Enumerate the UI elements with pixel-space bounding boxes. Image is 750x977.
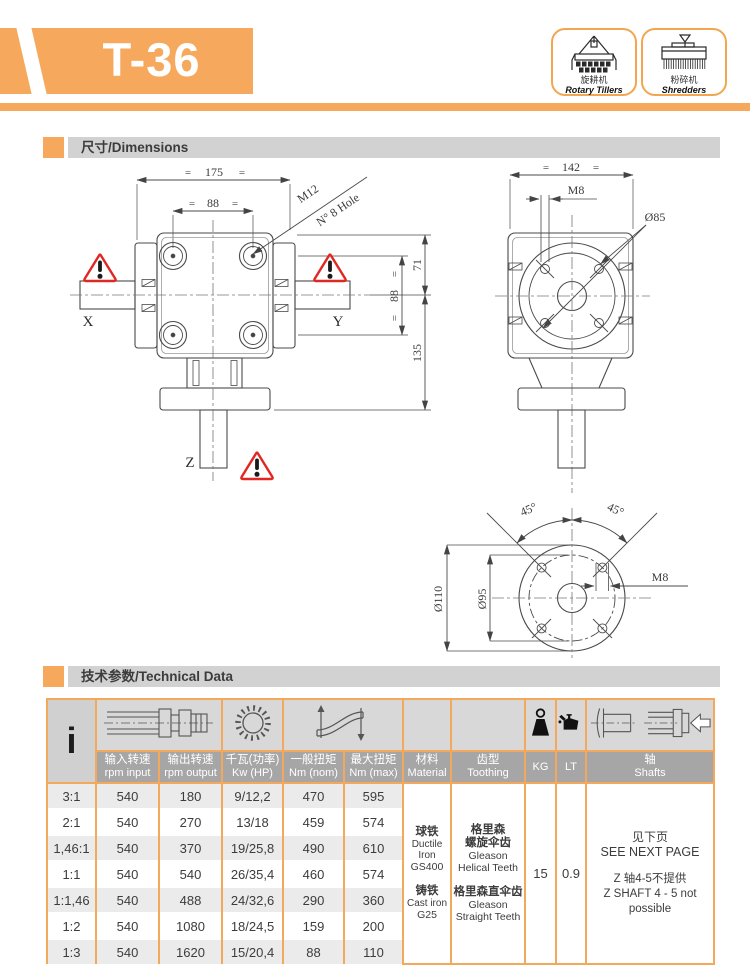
col-header-rpm-output: 输出转速rpm output	[159, 751, 222, 783]
rpm-input-cell: 540	[96, 783, 159, 809]
col-header-nm-nom: 一般扭矩Nm (nom)	[283, 751, 344, 783]
kw-hp-cell: 9/12,2	[222, 783, 283, 809]
col-header-kw-hp: 千瓦(功率)Kw (HP)	[222, 751, 283, 783]
datasheet-page: T-36 旋耕机 Rotary Tillers	[0, 0, 750, 977]
kw-hp-cell: 26/35,4	[222, 861, 283, 887]
dim-vertical-71: 71	[410, 259, 424, 271]
material-cell: 球铁 Ductile Iron GS400 铸铁 Cast iron G25	[403, 783, 451, 964]
dim-eq-mark: =	[185, 167, 191, 179]
technical-data-table: i	[46, 698, 715, 965]
section-title: 尺寸/Dimensions	[68, 137, 720, 158]
toothing-icon-cell	[451, 699, 525, 751]
col-header-toothing: 齿型Toothing	[451, 751, 525, 783]
rpm-output-cell: 488	[159, 887, 222, 913]
rpm-input-cell: 540	[96, 887, 159, 913]
machine-label-en: Shredders	[643, 85, 725, 95]
power-icon-cell	[222, 699, 283, 751]
kw-hp-cell: 19/25,8	[222, 835, 283, 861]
nm-nom-cell: 88	[283, 939, 344, 964]
header-divider-band	[0, 103, 750, 111]
col-header-lt: LT	[556, 751, 586, 783]
rpm-input-cell: 540	[96, 861, 159, 887]
nm-nom-cell: 290	[283, 887, 344, 913]
shafts-note-cell: 见下页 SEE NEXT PAGE Z 轴4-5不提供 Z SHAFT 4 - …	[586, 783, 714, 964]
dim-eq-mark: =	[389, 271, 401, 277]
nm-nom-cell: 470	[283, 783, 344, 809]
logo-slash	[16, 28, 46, 94]
kw-hp-cell: 13/18	[222, 809, 283, 835]
nm-nom-cell: 159	[283, 913, 344, 939]
shaft-label-y: Y	[333, 314, 344, 330]
rpm-input-cell: 540	[96, 835, 159, 861]
weight-icon-cell	[525, 699, 556, 751]
weight-icon	[527, 705, 554, 741]
front-view-drawing	[70, 177, 431, 481]
dim-eq-mark: =	[189, 198, 195, 210]
ratio-cell: 2:1	[47, 809, 96, 835]
rpm-output-cell: 180	[159, 783, 222, 809]
dim-eq-mark: =	[232, 198, 238, 210]
rpm-input-cell: 540	[96, 939, 159, 964]
machine-label-cn: 粉碎机	[643, 75, 725, 85]
rpm-output-cell: 1620	[159, 939, 222, 964]
ratio-cell: 1:1	[47, 861, 96, 887]
nm-max-cell: 595	[344, 783, 403, 809]
material-icon-cell	[403, 699, 451, 751]
col-header-kg: KG	[525, 751, 556, 783]
callout-m8-side: M8	[568, 183, 585, 197]
col-header-nm-max: 最大扭矩Nm (max)	[344, 751, 403, 783]
shaft-label-z: Z	[185, 455, 194, 471]
ratio-cell: 1:3	[47, 939, 96, 964]
toothing-cell: 格里森 螺旋伞齿 Gleason Helical Teeth 格里森直伞齿 Gl…	[451, 783, 525, 964]
rpm-output-cell: 270	[159, 809, 222, 835]
dimensions-drawing: = 175 = = 88 = M12 N° 8 Hole = 88 = 71 1…	[40, 163, 730, 663]
ratio-cell: 1,46:1	[47, 835, 96, 861]
rpm-output-cell: 370	[159, 835, 222, 861]
ratio-cell: 3:1	[47, 783, 96, 809]
dim-d110: Ø110	[431, 586, 445, 612]
warning-icon	[314, 255, 345, 281]
dim-hole-spacing: 88	[207, 196, 219, 210]
brand-block: T-36	[0, 28, 253, 94]
nm-max-cell: 574	[344, 861, 403, 887]
section-title: 技术参数/Technical Data	[68, 666, 720, 687]
machine-label-en: Rotary Tillers	[553, 85, 635, 95]
machine-label-cn: 旋耕机	[553, 75, 635, 85]
section-bullet	[43, 137, 64, 158]
rpm-input-cell: 540	[96, 809, 159, 835]
nm-max-cell: 360	[344, 887, 403, 913]
dim-vertical-135: 135	[410, 344, 424, 362]
kw-hp-cell: 24/32,6	[222, 887, 283, 913]
oil-lt-cell: 0.9	[556, 783, 586, 964]
torque-icon	[287, 703, 399, 743]
torque-icon-cell	[283, 699, 403, 751]
callout-d85: Ø85	[645, 210, 666, 224]
nm-max-cell: 610	[344, 835, 403, 861]
callout-m12: M12	[294, 182, 321, 206]
nm-max-cell: 200	[344, 913, 403, 939]
col-header-rpm-input: 输入转速rpm input	[96, 751, 159, 783]
shaft-label-x: X	[83, 314, 94, 330]
kw-hp-cell: 15/20,4	[222, 939, 283, 964]
rpm-output-cell: 540	[159, 861, 222, 887]
angle-45-right: 45°	[605, 500, 626, 520]
col-header-shafts: 轴Shafts	[586, 751, 714, 783]
dim-eq-mark: =	[543, 163, 549, 174]
ratio-cell: 1:1,46	[47, 887, 96, 913]
shredder-icon	[656, 33, 712, 75]
dim-eq-mark: =	[593, 163, 599, 174]
dim-vertical-88: 88	[387, 290, 401, 302]
ratio-cell: 1:2	[47, 913, 96, 939]
shafts-icon-cell	[586, 699, 714, 751]
warning-icon	[84, 255, 115, 281]
model-title: T-36	[50, 28, 253, 94]
pto-shaft-icon-cell	[96, 699, 222, 751]
technical-section-header: 技术参数/Technical Data	[43, 666, 723, 687]
nm-nom-cell: 459	[283, 809, 344, 835]
warning-icon	[241, 453, 272, 479]
col-header-material: 材料Material	[403, 751, 451, 783]
ratio-column-header: i	[47, 699, 96, 783]
oil-icon-cell	[556, 699, 586, 751]
side-view-drawing	[495, 175, 650, 493]
nm-nom-cell: 460	[283, 861, 344, 887]
table-row: 3:1 540 180 9/12,2 470 595 球铁 Ductile Ir…	[47, 783, 714, 809]
pto-shaft-icon	[103, 703, 215, 743]
power-gear-icon	[233, 703, 273, 743]
weight-kg-cell: 15	[525, 783, 556, 964]
dim-eq-mark: =	[239, 167, 245, 179]
rpm-input-cell: 540	[96, 913, 159, 939]
shafts-icon	[588, 703, 712, 743]
dim-d95: Ø95	[475, 589, 489, 610]
kw-hp-cell: 18/24,5	[222, 913, 283, 939]
section-bullet	[43, 666, 64, 687]
dim-total-width: 175	[205, 165, 223, 179]
nm-nom-cell: 490	[283, 835, 344, 861]
callout-m8-flange: M8	[652, 570, 669, 584]
oil-can-icon	[557, 711, 585, 735]
nm-max-cell: 574	[344, 809, 403, 835]
nm-max-cell: 110	[344, 939, 403, 964]
callout-hole-count: N° 8 Hole	[314, 190, 362, 229]
rotary-tiller-icon	[566, 33, 622, 75]
angle-45-left: 45°	[518, 499, 539, 519]
machine-box-rotary-tillers: 旋耕机 Rotary Tillers	[551, 28, 637, 96]
rpm-output-cell: 1080	[159, 913, 222, 939]
dim-side-width: 142	[562, 163, 580, 174]
dimensions-section-header: 尺寸/Dimensions	[43, 137, 723, 158]
machine-box-shredders: 粉碎机 Shredders	[641, 28, 727, 96]
dim-eq-mark: =	[389, 315, 401, 321]
